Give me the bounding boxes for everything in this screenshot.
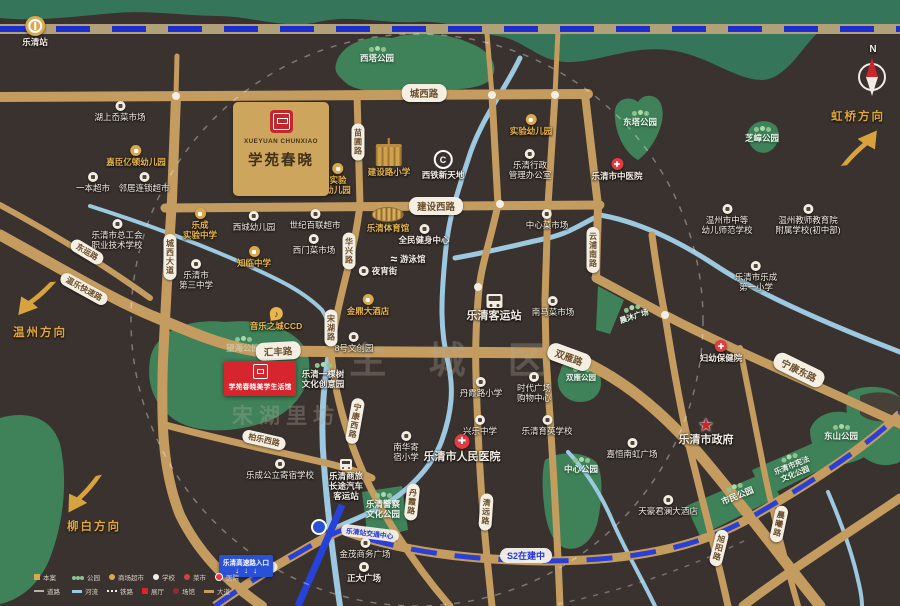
legend-item: 公园: [72, 572, 100, 582]
legend-item-label: 医院: [226, 572, 239, 582]
legend-item-label: 河流: [85, 586, 98, 596]
legend-icon: [107, 590, 117, 592]
legend-item: 展厅: [142, 586, 164, 596]
direction-label: 虹桥方向: [831, 108, 885, 124]
legend-item-label: 大道: [217, 586, 230, 596]
sales-hall-label: 学苑春晓美学生活馆: [229, 381, 292, 391]
legend-icon: [204, 590, 214, 593]
map-canvas: 主 城 区 宋湖里坊 乐清站 湖上岙菜市场 嘉臣亿顿幼儿园 一本超市: [0, 0, 900, 606]
legend-item: 铁路: [107, 586, 133, 596]
legend-item-label: 场馆: [182, 586, 195, 596]
compass: N: [857, 44, 889, 55]
legend-icon: [184, 574, 190, 580]
project-seal-icon: [270, 110, 293, 133]
legend-item-label: 菜市: [193, 572, 206, 582]
legend-item: 河流: [72, 586, 98, 596]
direction-label: 柳白方向: [67, 518, 121, 534]
legend-row-2: 河流 铁路 展厅 场馆: [72, 586, 239, 596]
legend-item: 道路: [34, 586, 60, 596]
direction-label: 温州方向: [13, 324, 67, 340]
legend-item-label: 铁路: [120, 586, 133, 596]
legend-icon: [34, 574, 40, 580]
legend-icon: [72, 575, 84, 580]
legend-row-1: 公园 商场超市 学校 菜市: [72, 572, 239, 582]
station-hub-icon: [311, 519, 327, 535]
sales-hall-marker: 学苑春晓美学生活馆: [224, 361, 296, 396]
project-logo-cn: 学苑春晓: [248, 149, 314, 170]
legend-item-label: 学校: [162, 572, 175, 582]
project-logo-en: XUEYUAN CHUNXIAO: [244, 138, 318, 145]
legend-icon: [109, 574, 115, 580]
project-block: XUEYUAN CHUNXIAO 学苑春晓: [233, 102, 329, 196]
legend-item-label: 商场超市: [118, 572, 144, 582]
legend-item: 医院: [215, 572, 239, 582]
legend-item: 大道: [204, 586, 230, 596]
direction-layer: 虹桥方向 温州方向 柳白方向: [0, 0, 900, 606]
s2-under-construction-label: S2在建中: [500, 548, 552, 563]
legend-primary-column: 本案 道路: [34, 572, 60, 596]
legend-item-label: 道路: [47, 586, 60, 596]
legend-icon: [142, 588, 148, 594]
sales-seal-icon: [253, 364, 268, 379]
legend-icon: [34, 590, 44, 592]
legend-item-label: 公园: [87, 572, 100, 582]
legend-icon: [173, 588, 179, 594]
legend-item: 场馆: [173, 586, 195, 596]
legend: 本案 道路 公园 商场超市: [34, 572, 239, 596]
legend-item-label: 展厅: [151, 586, 164, 596]
compass-n-label: N: [857, 44, 889, 55]
legend-item-label: 本案: [43, 572, 56, 582]
legend-icon: [215, 573, 223, 581]
legend-item: 学校: [153, 572, 175, 582]
legend-icon: [153, 574, 159, 580]
legend-icon: [72, 590, 82, 593]
legend-item: 商场超市: [109, 572, 144, 582]
legend-item: 菜市: [184, 572, 206, 582]
legend-item: 本案: [34, 572, 60, 582]
